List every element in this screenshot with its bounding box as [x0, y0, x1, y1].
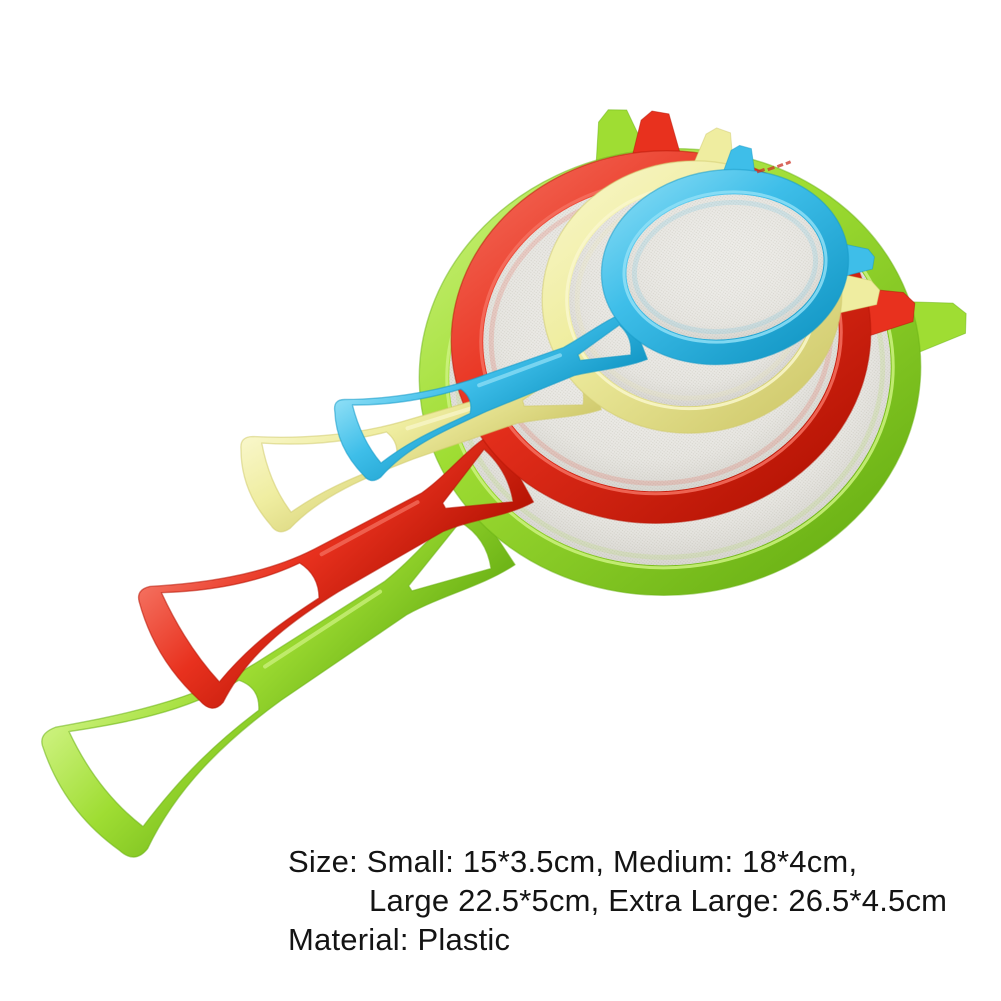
spec-material: Material: Plastic	[288, 920, 947, 959]
red-hook-tab	[631, 110, 681, 156]
spec-size-line1: Size: Small: 15*3.5cm, Medium: 18*4cm,	[288, 842, 947, 881]
red-handle-shape	[129, 403, 546, 718]
product-photo: Size: Small: 15*3.5cm, Medium: 18*4cm, L…	[0, 0, 1001, 1001]
spec-size-line2: Large 22.5*5cm, Extra Large: 26.5*4.5cm	[288, 881, 947, 920]
red-handle	[129, 403, 546, 718]
product-specs: Size: Small: 15*3.5cm, Medium: 18*4cm, L…	[288, 842, 947, 959]
strainer-red	[129, 84, 935, 718]
